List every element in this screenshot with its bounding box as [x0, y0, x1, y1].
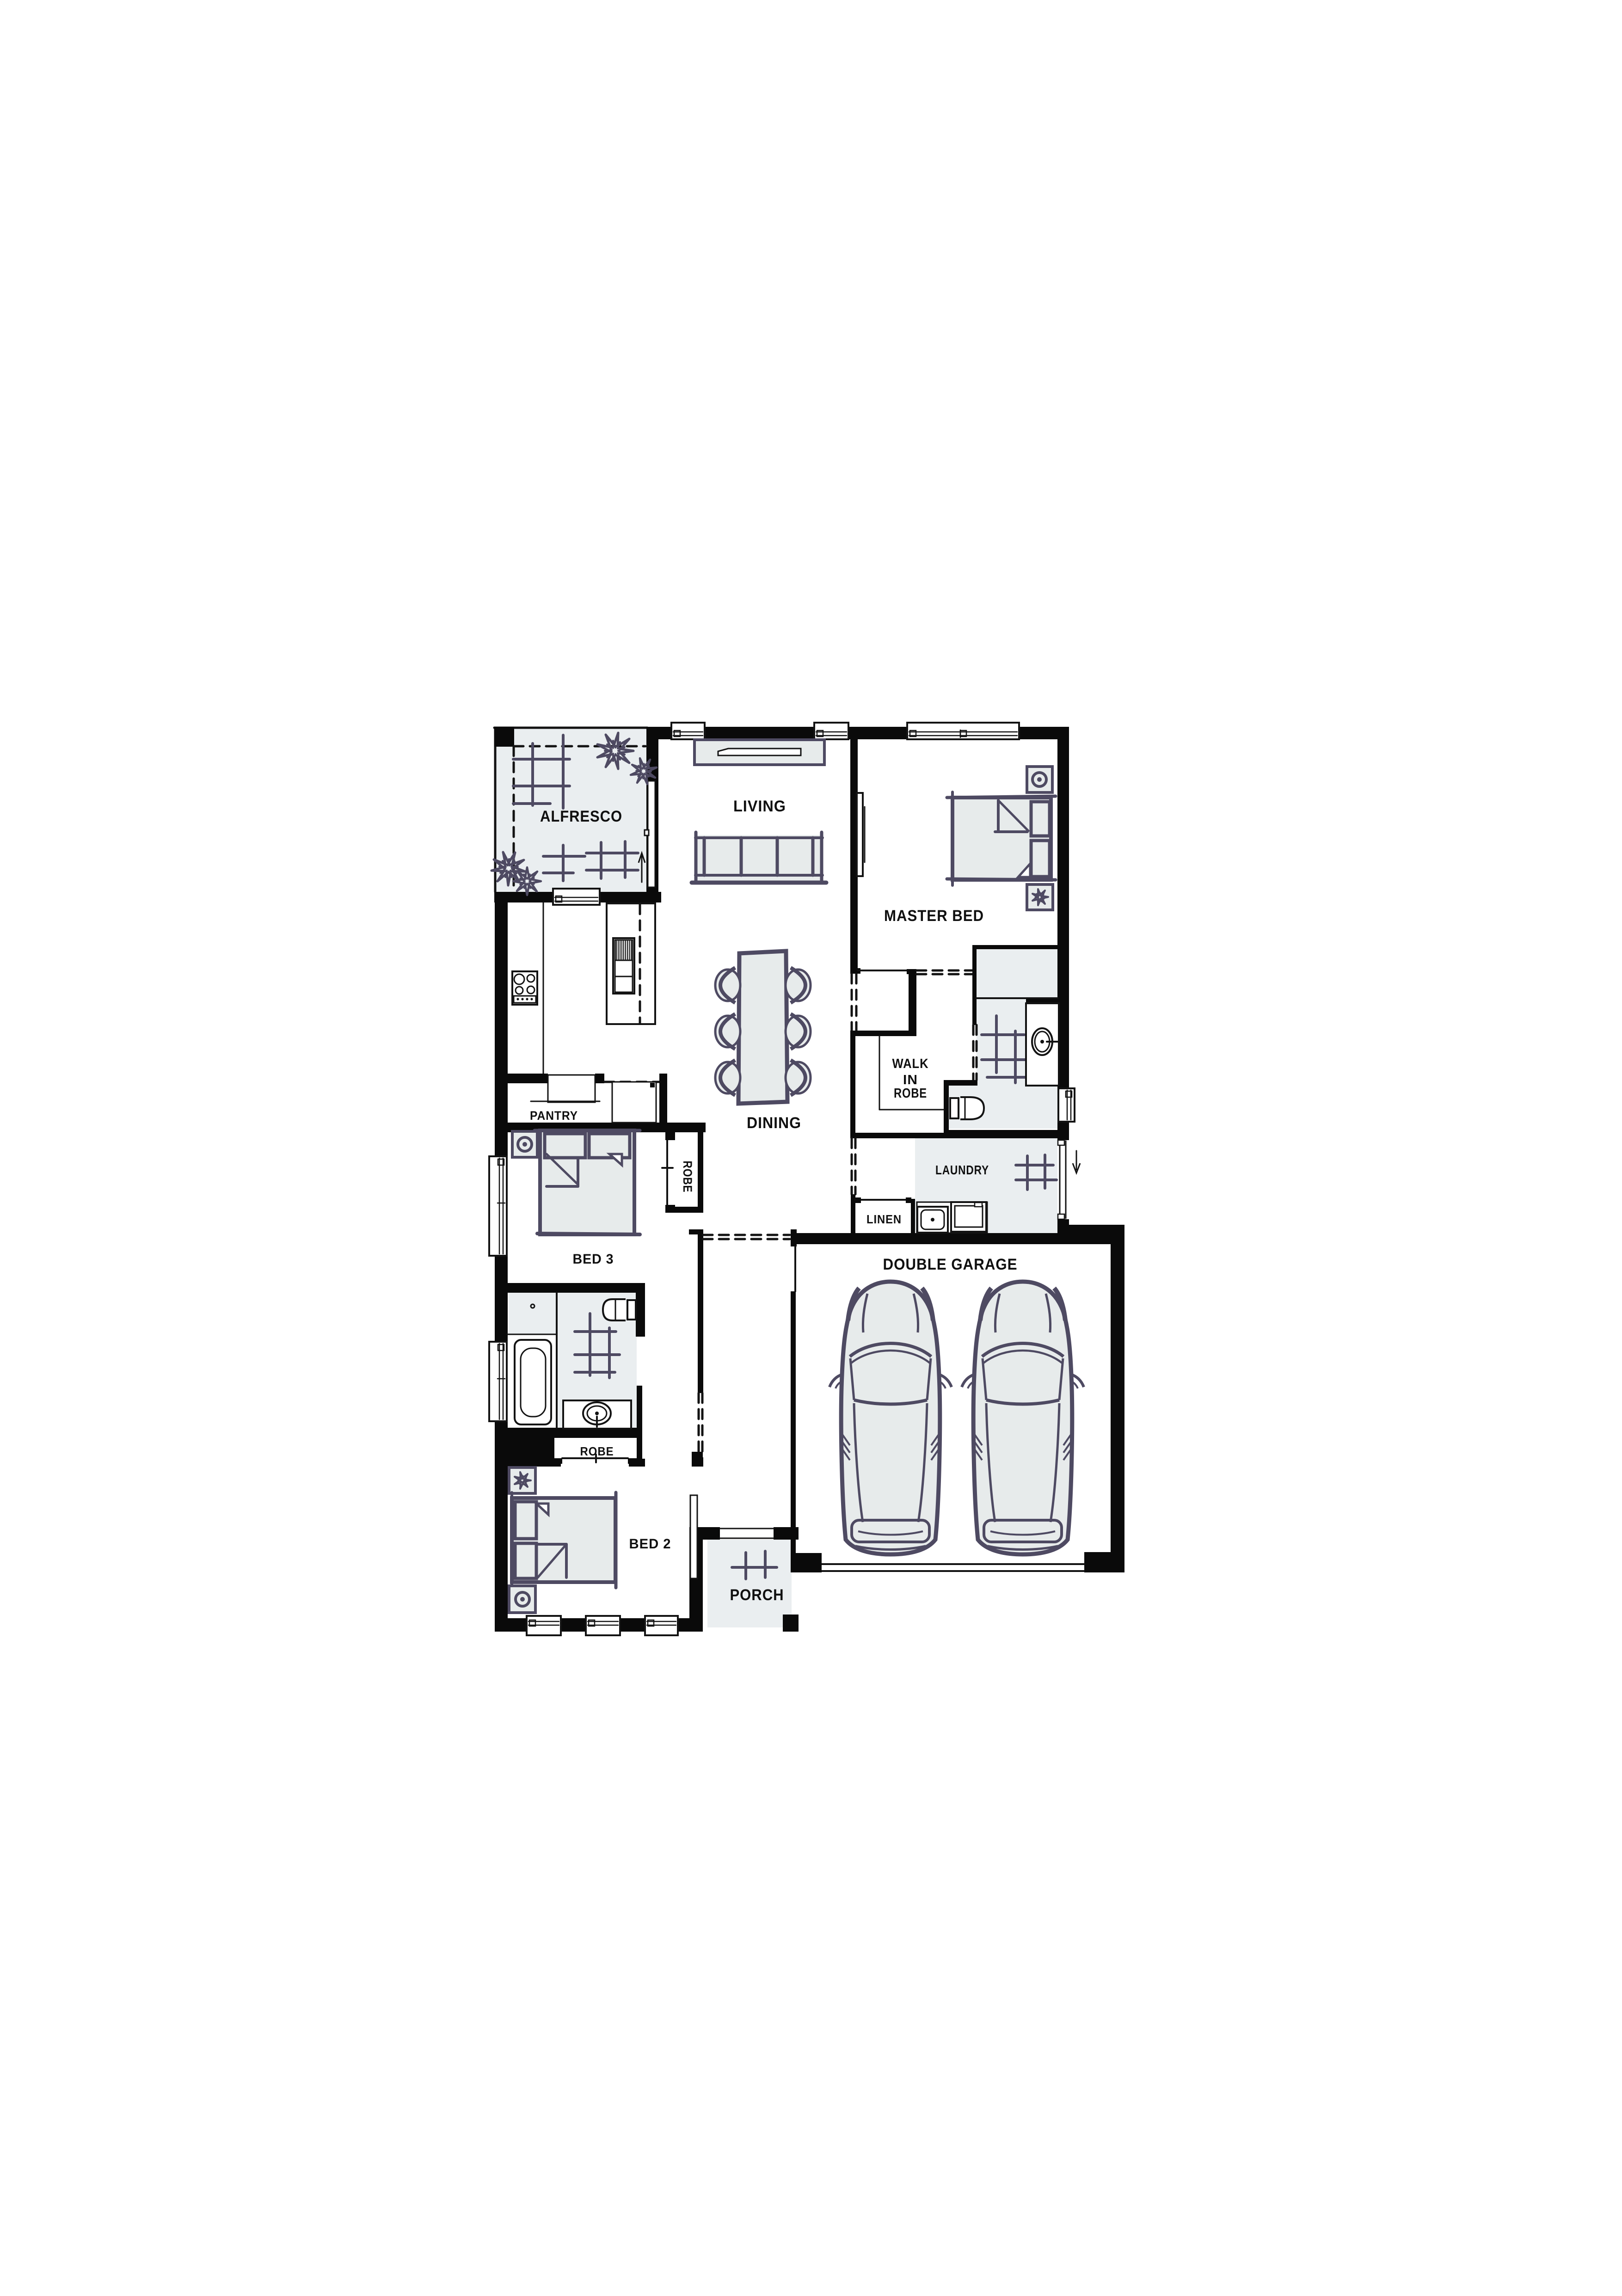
- svg-text:LINEN: LINEN: [866, 1212, 902, 1226]
- svg-text:BED 2: BED 2: [629, 1536, 671, 1552]
- svg-text:PORCH: PORCH: [730, 1586, 784, 1604]
- svg-text:BED 3: BED 3: [573, 1252, 614, 1267]
- svg-text:MASTER BED: MASTER BED: [884, 907, 984, 925]
- svg-text:ALFRESCO: ALFRESCO: [540, 808, 622, 825]
- svg-text:DOUBLE GARAGE: DOUBLE GARAGE: [883, 1256, 1018, 1273]
- svg-text:PANTRY: PANTRY: [530, 1109, 578, 1123]
- svg-text:ROBE: ROBE: [681, 1161, 694, 1193]
- svg-text:DINING: DINING: [747, 1114, 801, 1132]
- svg-text:LAUNDRY: LAUNDRY: [935, 1163, 989, 1177]
- svg-text:IN: IN: [903, 1073, 918, 1087]
- svg-text:ROBE: ROBE: [894, 1086, 927, 1101]
- svg-text:LIVING: LIVING: [733, 798, 786, 815]
- svg-text:ROBE: ROBE: [580, 1444, 614, 1458]
- svg-text:WALK: WALK: [892, 1056, 929, 1071]
